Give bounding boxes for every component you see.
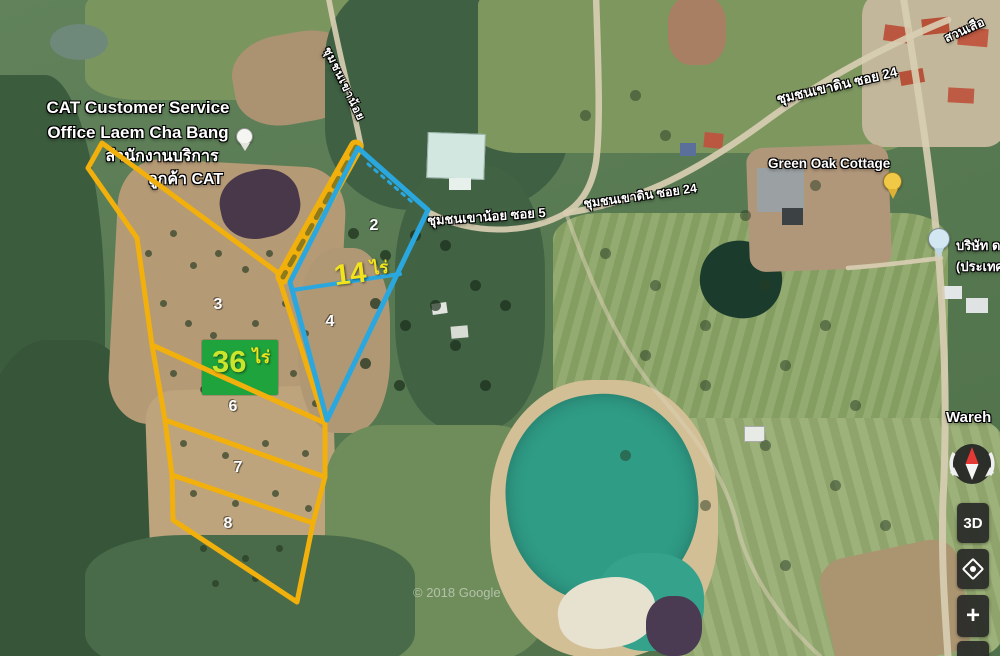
- my-location-button[interactable]: [957, 549, 989, 589]
- plot-number-7: 7: [234, 459, 243, 477]
- area-36-value: 36: [212, 346, 246, 377]
- plot-divider-6-7: [165, 420, 325, 477]
- pin-tail: [240, 143, 250, 151]
- zoom-in-button[interactable]: +: [957, 595, 989, 637]
- area-36-unit: ไร่: [252, 344, 270, 371]
- area-14-value: 14: [332, 259, 368, 292]
- area-14-unit: ไร่: [369, 254, 390, 283]
- plot-strip-rungs: [283, 147, 356, 277]
- map-pin-cat-office[interactable]: [236, 128, 253, 151]
- zoom-out-button[interactable]: −: [957, 641, 989, 656]
- map-pin-green-oak[interactable]: [883, 172, 902, 199]
- 3d-button[interactable]: 3D: [957, 503, 989, 543]
- plot-number-6: 6: [229, 398, 238, 416]
- plot-number-4: 4: [326, 313, 335, 331]
- map-pin-company[interactable]: [928, 228, 950, 259]
- warehouse-label: Wareh: [946, 409, 991, 426]
- plot-number-2: 2: [370, 217, 379, 235]
- plot-number-8: 8: [224, 515, 233, 533]
- plot-blue-tick-marks: [368, 164, 412, 202]
- compass-icon: [946, 434, 998, 496]
- satellite-map-canvas[interactable]: CAT Customer Service Office Laem Cha Ban…: [0, 0, 1000, 656]
- area-36-label: 36 ไร่: [212, 346, 270, 377]
- pin-tail: [888, 189, 898, 199]
- plot-annotation-layer: [0, 0, 1000, 656]
- pin-head-icon: [928, 228, 950, 250]
- plot-number-3: 3: [214, 296, 223, 314]
- zoom-out-label: −: [966, 649, 980, 656]
- plot-divider-7-8: [172, 475, 313, 523]
- pin-tail: [934, 248, 944, 259]
- my-location-icon: [962, 558, 985, 581]
- 3d-button-label: 3D: [963, 515, 982, 532]
- zoom-in-label: +: [966, 604, 980, 628]
- compass-control[interactable]: [946, 434, 998, 496]
